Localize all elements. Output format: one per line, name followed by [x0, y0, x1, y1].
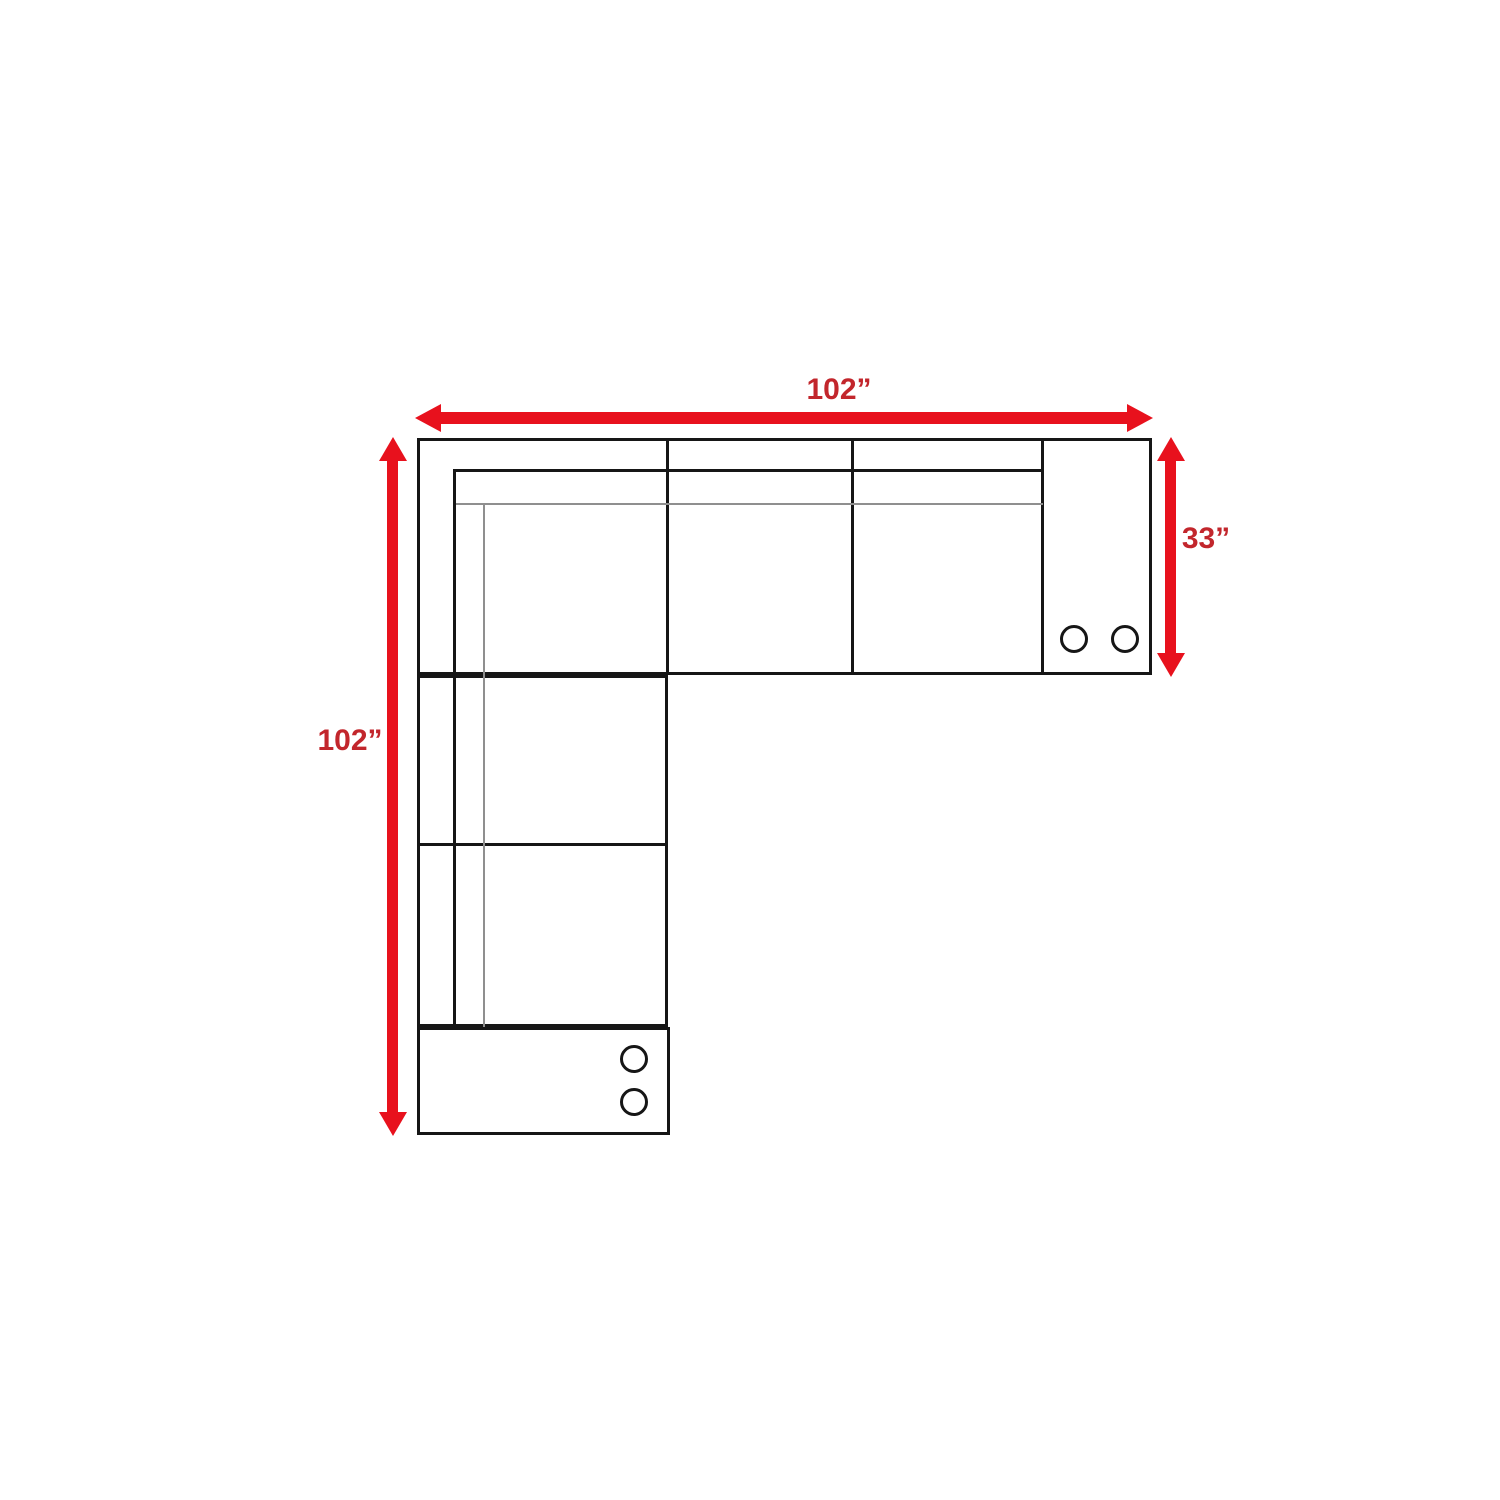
top-width-dimension-label: 102”: [806, 375, 871, 405]
left-height-dimension-label: 102”: [317, 726, 382, 756]
console-divider-line: [1041, 438, 1044, 675]
seat-edge-line-horizontal: [456, 503, 1043, 505]
left-height-dimension-arrow: [379, 437, 407, 1136]
cup-holder-icon: [1060, 625, 1088, 653]
top-width-dimension-arrow: [415, 404, 1153, 432]
cup-holder-icon: [620, 1088, 648, 1116]
backrest-line-horizontal: [453, 469, 1043, 472]
arrow-head-down-icon: [379, 1112, 407, 1136]
arrow-shaft: [1165, 457, 1176, 657]
diagram-canvas: 102” 102” 33”: [0, 0, 1500, 1500]
arrow-shaft: [437, 412, 1131, 424]
right-depth-dimension-arrow: [1157, 437, 1185, 677]
cup-holder-icon: [1111, 625, 1139, 653]
sofa-bottom-console-outline: [417, 1027, 670, 1135]
arrow-head-down-icon: [1157, 653, 1185, 677]
right-depth-dimension-label: 33”: [1182, 524, 1230, 554]
arrow-shaft: [387, 457, 398, 1116]
arrow-head-right-icon: [1127, 404, 1153, 432]
seat-divider-line: [666, 438, 669, 675]
cup-holder-icon: [620, 1045, 648, 1073]
seat-divider-line: [851, 438, 854, 675]
backrest-line-vertical: [453, 469, 456, 1027]
seat-edge-line-vertical: [483, 503, 485, 1027]
